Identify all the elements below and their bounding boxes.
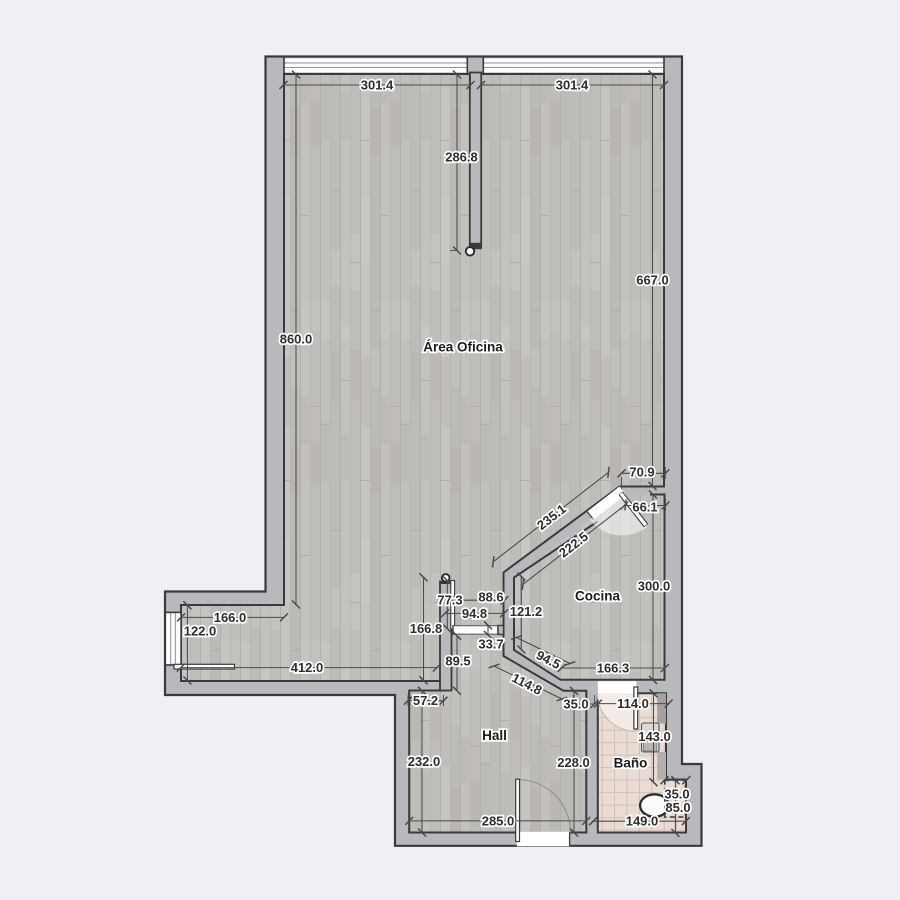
svg-text:301.4: 301.4: [361, 78, 394, 93]
svg-text:66.1: 66.1: [632, 500, 657, 515]
svg-text:33.7: 33.7: [478, 636, 503, 651]
svg-text:Área Oficina: Área Oficina: [423, 340, 503, 355]
svg-text:300.0: 300.0: [638, 579, 671, 594]
svg-text:77.3: 77.3: [437, 593, 462, 608]
svg-text:57.2: 57.2: [413, 693, 438, 708]
svg-text:166.3: 166.3: [597, 660, 630, 675]
svg-text:114.0: 114.0: [617, 696, 649, 711]
svg-text:166.8: 166.8: [410, 621, 443, 636]
svg-text:88.6: 88.6: [478, 590, 503, 605]
svg-text:Cocina: Cocina: [575, 589, 621, 604]
svg-text:Hall: Hall: [482, 728, 507, 743]
svg-text:166.0: 166.0: [214, 610, 247, 625]
svg-text:285.0: 285.0: [482, 813, 515, 828]
svg-text:301.4: 301.4: [556, 78, 589, 93]
svg-text:121.2: 121.2: [510, 604, 543, 619]
svg-text:412.0: 412.0: [291, 660, 324, 675]
svg-text:122.0: 122.0: [184, 624, 217, 639]
svg-text:70.9: 70.9: [629, 465, 654, 480]
svg-text:94.8: 94.8: [462, 606, 487, 621]
svg-text:89.5: 89.5: [445, 654, 470, 669]
svg-text:228.0: 228.0: [557, 755, 590, 770]
svg-text:286.8: 286.8: [445, 150, 478, 165]
svg-text:232.0: 232.0: [408, 754, 441, 769]
svg-text:667.0: 667.0: [636, 273, 669, 288]
svg-text:143.0: 143.0: [638, 729, 671, 744]
svg-text:149.0: 149.0: [626, 814, 659, 829]
svg-text:860.0: 860.0: [280, 332, 313, 347]
svg-text:Baño: Baño: [614, 756, 648, 771]
svg-text:35.0: 35.0: [563, 697, 588, 712]
svg-text:85.0: 85.0: [665, 800, 690, 815]
